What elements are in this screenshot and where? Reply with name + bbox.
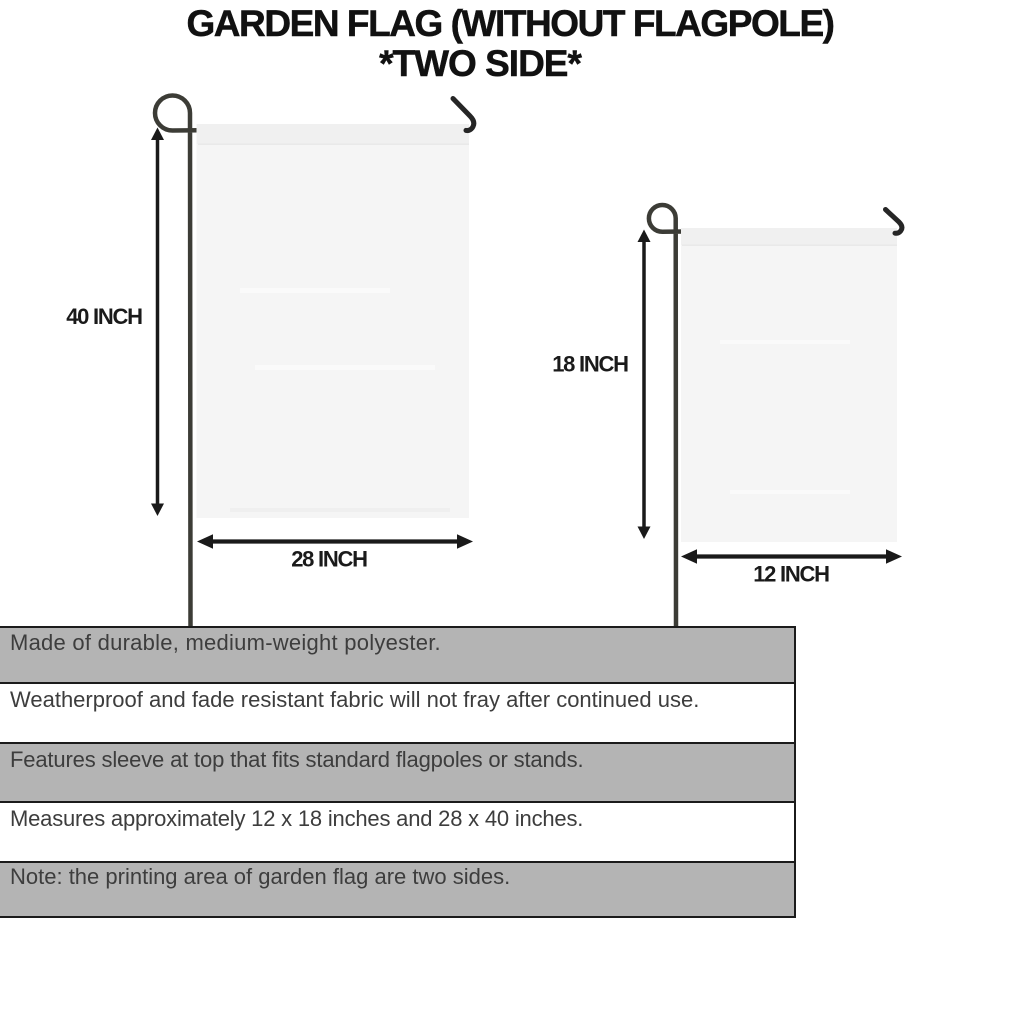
svg-text:28 INCH: 28 INCH (291, 547, 367, 572)
svg-text:18 INCH: 18 INCH (552, 352, 628, 377)
svg-text:40 INCH: 40 INCH (66, 304, 142, 329)
svg-text:12 INCH: 12 INCH (753, 562, 829, 587)
